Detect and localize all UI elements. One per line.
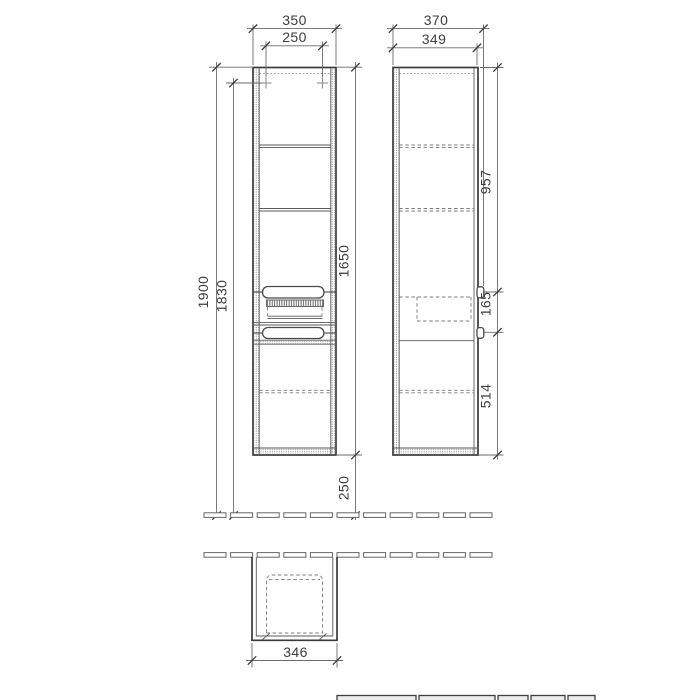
front-elevation-view: [253, 68, 336, 456]
floor-line-elevation: [204, 513, 492, 518]
mounting-cross-left: [261, 78, 272, 89]
dim-side-depth-body: 349: [387, 31, 483, 65]
front-bottom-panel-hatch: [254, 448, 335, 454]
side-elevation-view: [393, 68, 484, 456]
dim-front-mount-width: 250: [260, 29, 329, 77]
plan-hidden-body-outline: [267, 575, 323, 633]
dim-front-mount-width-label: 250: [282, 29, 307, 45]
plan-corner-tick: [320, 634, 327, 640]
plan-view: [251, 557, 338, 641]
technical-drawing: 350 250 370 349 1900 1830: [0, 0, 700, 700]
dim-right-chain: 957 165 514: [478, 63, 504, 460]
dim-body-height-label: 1650: [336, 245, 352, 278]
plan-corner-tick: [263, 634, 270, 640]
dim-handle-spacing-label: 165: [478, 292, 494, 317]
dim-height-total-label: 1900: [195, 276, 211, 309]
dim-upper-section-label: 957: [478, 170, 494, 195]
front-lower-handle: [263, 328, 325, 339]
mounting-cross-right: [317, 78, 328, 89]
dim-height-mount-label: 1830: [214, 280, 230, 313]
dim-bottom-clearance-label: 250: [336, 476, 352, 501]
dim-lower-section-label: 514: [478, 384, 494, 409]
wall-line-plan: [204, 553, 492, 558]
front-upper-handle: [263, 287, 325, 299]
dim-plan-depth: 346: [246, 643, 343, 668]
side-back-panel-hatch: [394, 69, 399, 454]
dim-body-height: 1650 250: [336, 62, 363, 520]
side-cabinet-outline: [393, 68, 478, 456]
dim-front-width-label: 350: [282, 12, 307, 28]
dim-plan-depth-label: 346: [283, 644, 308, 660]
dim-side-depth-total-label: 370: [424, 12, 449, 28]
side-lower-handle-profile: [477, 328, 484, 339]
front-gap-hatch: [259, 340, 331, 344]
pullout-rail-hatch: [267, 300, 324, 307]
wall-line-bottom-partial: [337, 696, 595, 700]
front-cabinet-outline: [253, 68, 336, 456]
front-left-panel-hatch: [254, 69, 259, 454]
side-bottom-panel-hatch: [394, 448, 477, 454]
dim-side-depth-body-label: 349: [422, 31, 447, 47]
